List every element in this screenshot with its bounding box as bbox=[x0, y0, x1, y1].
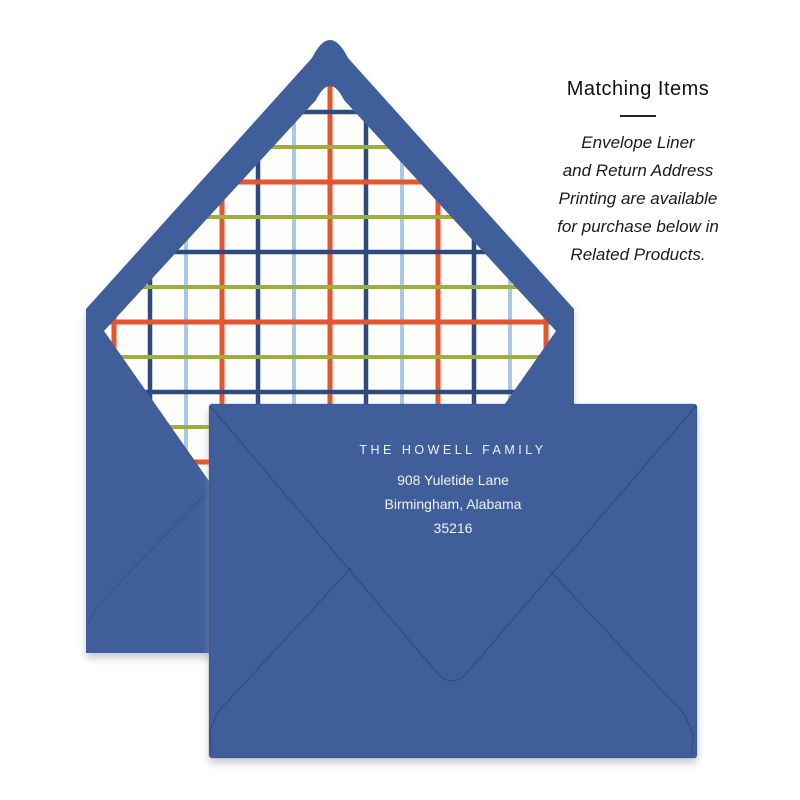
description-line: Envelope Liner bbox=[528, 129, 748, 157]
description-line: Printing are available bbox=[528, 185, 748, 213]
matching-items-block: Matching Items Envelope Liner and Return… bbox=[528, 78, 748, 269]
return-address-zip: 35216 bbox=[209, 516, 697, 540]
return-address-street: 908 Yuletide Lane bbox=[209, 468, 697, 492]
matching-items-description: Envelope Liner and Return Address Printi… bbox=[528, 129, 748, 269]
matching-items-title: Matching Items bbox=[528, 78, 748, 101]
divider-line bbox=[620, 115, 656, 117]
description-line: for purchase below in bbox=[528, 213, 748, 241]
description-line: Related Products. bbox=[528, 241, 748, 269]
return-address-city-state: Birmingham, Alabama bbox=[209, 492, 697, 516]
return-address-block: THE HOWELL FAMILY 908 Yuletide Lane Birm… bbox=[209, 443, 697, 540]
return-address-name: THE HOWELL FAMILY bbox=[209, 443, 697, 458]
description-line: and Return Address bbox=[528, 157, 748, 185]
